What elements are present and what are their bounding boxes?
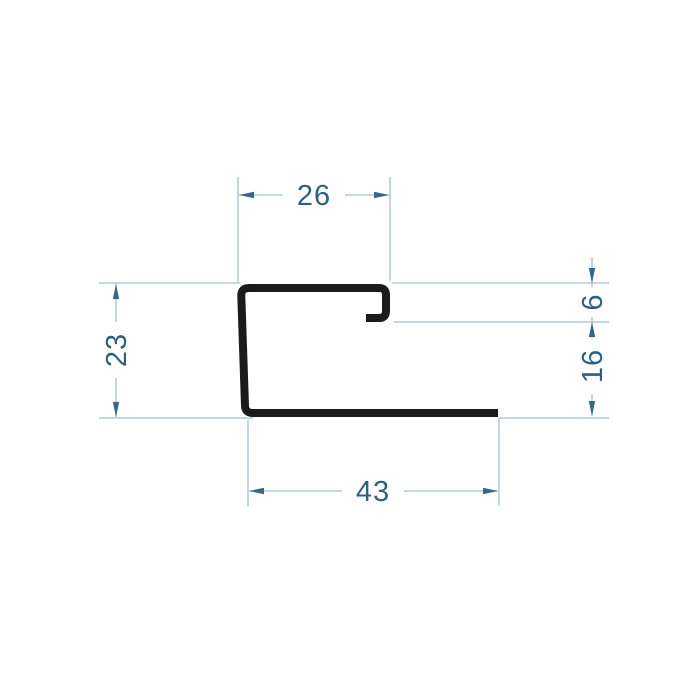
arrow-bottom-width-left	[249, 488, 264, 494]
label-bottom-width: 43	[356, 476, 390, 508]
technical-drawing: 26 23 6 16 43	[0, 0, 700, 700]
label-hook-height: 6	[577, 293, 609, 310]
profile-dimension-diagram: 26 23 6 16 43	[0, 0, 700, 700]
arrow-left-height-bottom	[113, 402, 119, 417]
label-left-height: 23	[101, 333, 133, 367]
label-top-width: 26	[297, 180, 331, 212]
label-lower-right-height: 16	[577, 349, 609, 383]
arrow-hook-height-bottom	[589, 322, 595, 337]
arrow-top-width-right	[374, 192, 389, 198]
arrow-lower-right-height-bottom	[589, 401, 595, 416]
arrow-left-height-top	[113, 284, 119, 299]
arrow-hook-height-top	[589, 268, 595, 283]
profile-outline	[241, 288, 498, 413]
arrow-bottom-width-right	[483, 488, 498, 494]
arrow-top-width-left	[239, 192, 254, 198]
